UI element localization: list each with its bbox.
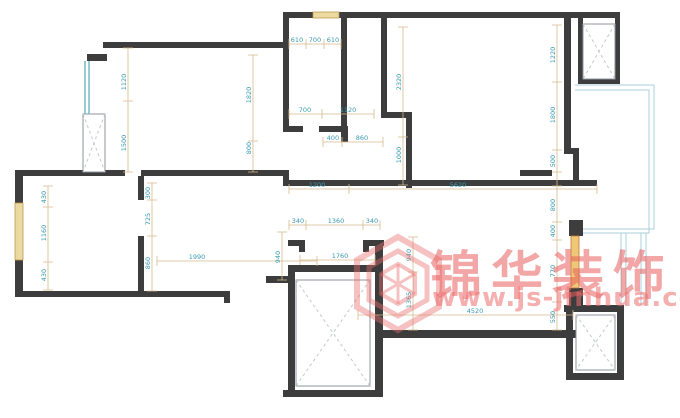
shaft-top-right xyxy=(583,24,615,79)
dimension-label: 770 xyxy=(549,265,557,277)
window-right-wall xyxy=(571,236,579,288)
dimension-label: 1820 xyxy=(245,87,253,104)
dimension-label: 1360 xyxy=(328,217,345,225)
dimension-label: 1000 xyxy=(395,147,403,164)
dimension-label: 550 xyxy=(549,311,557,323)
dimension-label: 610 xyxy=(327,36,339,44)
window-top-middle xyxy=(313,12,339,18)
dimension-label: 430 xyxy=(40,191,48,203)
dimension-label: 860 xyxy=(144,257,152,269)
floor-plan-canvas: 6107006107001120400860120056201990340136… xyxy=(0,0,680,418)
dimension-label: 1200 xyxy=(309,181,326,189)
dimension-label: 1220 xyxy=(549,47,557,64)
dimension-label: 340 xyxy=(292,217,304,225)
dimension-label: 800 xyxy=(245,142,253,154)
window-top-left-teal xyxy=(85,61,89,114)
dimension-label: 500 xyxy=(549,155,557,167)
dimension-label: 2320 xyxy=(395,74,403,91)
dimension-label: 1990 xyxy=(189,253,206,261)
dimension-label: 1500 xyxy=(120,135,128,152)
dimension-label: 725 xyxy=(144,213,152,225)
dimension-label: 430 xyxy=(40,269,48,281)
dimension-label: 340 xyxy=(366,217,378,225)
dimension-label: 5620 xyxy=(450,181,467,189)
dimension-label: 400 xyxy=(327,134,339,142)
dimension-label: 700 xyxy=(309,36,321,44)
dimension-label: 940 xyxy=(274,251,282,263)
balcony-outline xyxy=(575,85,654,305)
dimension-label: 1800 xyxy=(549,107,557,124)
dimension-label: 610 xyxy=(291,36,303,44)
dimension-label: 300 xyxy=(144,187,152,199)
window-left-bedroom xyxy=(15,203,23,260)
floor-plan-page: 6107006107001120400860120056201990340136… xyxy=(0,0,680,418)
dimension-label: 4520 xyxy=(467,307,484,315)
dimension-label: 700 xyxy=(299,106,311,114)
duct-column-left xyxy=(83,114,105,172)
dimension-label: 800 xyxy=(549,199,557,211)
watermark-logo xyxy=(357,237,439,330)
dimension-label: 1160 xyxy=(40,225,48,242)
dimension-label: 1120 xyxy=(120,74,128,91)
dimension-label: 860 xyxy=(356,134,368,142)
shaft-bottom-right xyxy=(576,315,615,370)
dimension-label: 1120 xyxy=(340,106,357,114)
dimension-label: 400 xyxy=(549,225,557,237)
dimension-label: 1760 xyxy=(332,252,349,260)
